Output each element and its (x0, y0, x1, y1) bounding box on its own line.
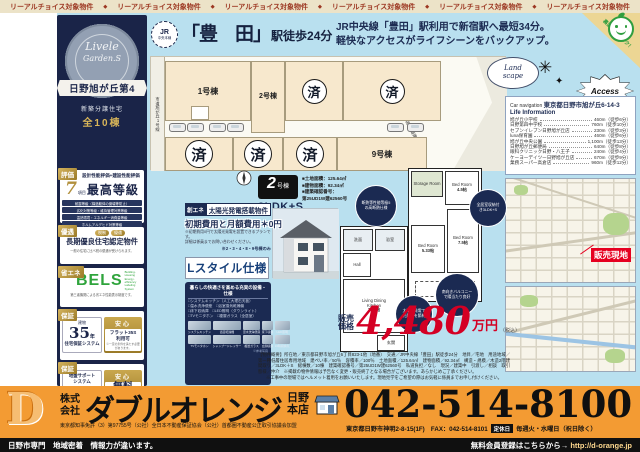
strip-label: リーアルチョイス対象物件 (439, 2, 522, 12)
site-location-label: 販売現地 (591, 248, 631, 262)
bubble-text: 全居室収納付き3LDK+S (475, 203, 501, 214)
equipment-bullet: □TVモニタホン □複層ガラス（全居室） (188, 314, 268, 319)
strip-separator-icon: ◆ (533, 4, 537, 10)
branch-name1: 日野 (287, 392, 309, 404)
flat35s-box: 安心 フラット35S 利用可 ※一定の条件を満たす必要があります。 (104, 317, 142, 353)
equipment-tile: 浴室乾燥機 (213, 321, 242, 334)
real-estate-flyer: リーアルチョイス対象物件◆ リーアルチョイス対象物件◆ リーアルチョイス対象物件… (0, 0, 640, 452)
equipment-tile: シャンプードレッサー (213, 335, 242, 348)
warranty-years: 35 (69, 324, 90, 342)
strip-separator-icon: ◆ (211, 4, 215, 10)
car-icon (387, 123, 404, 132)
lot-2: 2号棟 (251, 61, 285, 133)
footer-slogan: 日野市専門 地域密着 情報力が違います。 (8, 440, 157, 451)
company-bar: D 株式 会社 ダブルオレンジ 日野 本店 042-514-8100 東京都知事… (0, 386, 640, 438)
bels-logo-sub: Building-Housing Energy-efficiency Label… (125, 271, 142, 291)
badge-tag: 省エネ (58, 266, 84, 278)
sparkle-icon: ✦ (555, 76, 563, 87)
bubble-text: 断熱等性能等級5の高断熱仕様 (361, 201, 391, 212)
station-title: 「豊 田」駅徒歩24分 (181, 19, 332, 46)
wide-area-map (505, 286, 636, 372)
lot-1-garage (191, 106, 209, 120)
lot-sold: 済 (343, 61, 441, 121)
room-bed3-size: 7.5帖 (458, 241, 468, 246)
car-icon (227, 123, 244, 132)
badge-tag: 保証 (58, 309, 77, 321)
overview-text: 【物件概要】所在地／東京都日野市旭が丘6丁目823-1他（地番） 交通／JR中央… (258, 352, 510, 374)
tile-caption: シャンプードレッサー (213, 344, 242, 348)
company-logo: D (6, 388, 44, 432)
reference-photo-note: ※参考写真 (188, 349, 268, 353)
access-label: Access (591, 87, 619, 96)
strip-separator-icon: ◆ (425, 4, 429, 10)
badge-long-term-quality: 優遇 税制 優遇 長期優良住宅認定物件 一般の住宅に比べ税の優遇が受けられます。 (60, 227, 144, 264)
lot-1-label: 1号棟 (198, 86, 218, 97)
property-overview: 【物件概要】所在地／東京都日野市旭が丘6丁目823-1他（地番） 交通／JR中央… (258, 352, 510, 381)
jr-label: JR (160, 29, 169, 36)
solar-banner: 創エネ 太陽光発電搭載物件 (185, 203, 271, 216)
smiley-face-icon (608, 16, 634, 42)
room-storage: Storage Room (414, 182, 441, 187)
park-area (514, 185, 528, 195)
car-icon (209, 123, 226, 132)
room-powder: 洗面 (354, 238, 362, 243)
badge-note: 一般の住宅に比べ税の優遇が受けられます。 (62, 248, 142, 253)
tile-caption: 複層ガラス (243, 344, 260, 348)
price-unit: 万円 (472, 315, 498, 334)
anshin-label: 安心 (105, 319, 141, 328)
sold-stamp: 済 (244, 140, 272, 168)
address-row: 東京都日野市神明2-8-15(1F) FAX：042-514-8101 定休日 … (346, 424, 597, 433)
equipment-tile: システムキッチン (188, 321, 211, 334)
strip-separator-icon: ◆ (318, 4, 322, 10)
lot-sold: 済 (233, 137, 283, 171)
facility-distance: 960m（徒歩12分） (591, 160, 631, 165)
holiday-text: 毎週火・水曜日（祝日除く） (516, 424, 596, 433)
flat35s-note: ※一定の条件を満たす必要があります。 (106, 342, 140, 350)
website-link[interactable]: http://d-orange.jp (570, 441, 632, 450)
jr-line-badge-icon: JR 中央本線 (151, 21, 178, 48)
car-icon (407, 123, 424, 132)
catch-copy: JR中央線「豊田」駅利用で新宿駅へ最短34分。 軽快なアクセスがライフシーンをバ… (336, 21, 536, 48)
solar-title: 太陽光発電搭載物件 (206, 203, 271, 216)
header-strip: リーアルチョイス対象物件◆ リーアルチョイス対象物件◆ リーアルチョイス対象物件… (0, 0, 640, 13)
project-emblem: Livele Garden.S 日野旭が丘第4 新築分譲住宅 全10棟 (60, 18, 144, 166)
feature-bubble: 全居室収納付き3LDK+S (470, 190, 506, 226)
badge-heading: 長期優良住宅認定物件 (62, 237, 142, 247)
tile-caption: 玄関収納 (262, 344, 274, 348)
brand-logo-sub: Garden.S (60, 54, 144, 63)
jr-line-name: 中央本線 (158, 36, 172, 40)
lot-9-label: 9号棟 (372, 149, 392, 160)
badge-grade: 最高等級 (87, 181, 139, 198)
lot-sold: 済 (283, 137, 337, 171)
grade-row: 耐震等級（構造躯体の倒壊等防止） (62, 200, 142, 206)
badge-number: 7 (65, 179, 77, 199)
strip-label: リーアルチョイス対象物件 (546, 2, 629, 12)
station-walk: 駅徒歩24分 (271, 29, 332, 43)
warranty-years-unit: 年 (90, 334, 95, 340)
badge-chip: 税制 (95, 230, 109, 236)
badge-tag: 評価 (58, 168, 77, 180)
badge-performance-rating: 評価 設計性能評価+建設性能評価 7 項目 最高等級 耐震等級（構造躯体の倒壊等… (60, 170, 144, 223)
company-type2: 会社 (60, 406, 80, 418)
room-bed2-size: 5.33帖 (422, 249, 434, 254)
sold-stamp: 済 (302, 79, 327, 104)
sold-stamp: 済 (296, 140, 324, 168)
road-left: 市道旭が丘1号線 (151, 57, 165, 171)
life-information-card: Car navigation 東京都日野市旭が丘6-14-3 Life Info… (505, 96, 636, 175)
facility-name: 業務スーパー高倉店 (510, 160, 551, 165)
lot-1: 1号棟 (165, 61, 251, 121)
company-type1: 株式 (60, 394, 80, 406)
company-address: 東京都日野市神明2-8-15(1F) FAX：042-514-8101 (346, 424, 488, 433)
price-block: 販売 価格 4,480 万円 （税込） (338, 304, 520, 338)
unit-number: 2 (267, 175, 276, 193)
lot-sold: 済 (165, 137, 233, 171)
tile-caption: TVモニタホン (188, 344, 211, 348)
equipment-tile: 24時間換気 (275, 335, 290, 348)
strip-label: リーアルチョイス対象物件 (332, 2, 415, 12)
equipment-tile: LED照明 (275, 321, 290, 334)
badge-tag: 保証 (58, 362, 77, 374)
sold-stamp: 済 (185, 140, 213, 168)
project-subtitle: 新築分譲住宅 (60, 104, 144, 113)
grade-row: 温熱環境・エネルギー消費量等級 (62, 214, 142, 220)
storefront-icon (314, 394, 340, 421)
equipment-tile: TVモニタホン (188, 335, 211, 348)
leaf-icon (617, 12, 625, 19)
badge-tag: 優遇 (58, 225, 77, 237)
unit-number-suffix: 号棟 (277, 181, 289, 190)
strip-label: リーアルチョイス対象物件 (117, 2, 200, 12)
left-margin (0, 13, 57, 386)
warranty-35-box: 建物 35年 住宅保証システム (62, 317, 102, 353)
badge-heading: 設計性能評価+建設性能評価 (80, 173, 142, 179)
station-name: 「豊 田」 (181, 24, 271, 45)
tile-caption: 床下収納 (262, 330, 274, 334)
certification-panel: Livele Garden.S 日野旭が丘第4 新築分譲住宅 全10棟 評価 設… (57, 15, 147, 386)
tile-caption: システムキッチン (188, 330, 211, 334)
holiday-chip: 定休日 (491, 424, 514, 433)
license-text: 東京都知事免許（3）第97755号（公社）全日本不動産保証協会（公社）首都圏不動… (60, 422, 340, 429)
catch-line1: JR中央線「豊田」駅利用で新宿駅へ最短34分。 (336, 21, 536, 35)
price-label2: 価格 (338, 323, 354, 332)
park-area (605, 349, 625, 363)
project-name-ribbon: 日野旭が丘第4 (57, 80, 147, 96)
badge-bels: 省エネ BELS Building-Housing Energy-efficie… (60, 268, 144, 307)
badge-chip: 優遇 (111, 230, 125, 236)
car-icon (169, 123, 186, 132)
road-left-label: 市道旭が丘1号線 (155, 97, 161, 131)
badge-number-unit: 項目 (78, 190, 86, 196)
car-icon (187, 123, 204, 132)
sold-stamp: 済 (380, 79, 405, 104)
solar-note-line2: 詳細は係員までお問い合わせください。 (185, 240, 271, 245)
solar-tag: 創エネ (185, 203, 206, 216)
solar-note: ※初期費用0円で太陽光発電を設置できるプランです。 詳細は係員までお問い合わせく… (185, 230, 271, 245)
tile-caption: 24時間換気 (275, 344, 290, 348)
solar-zero-cost: 初期費用と月額費用＊0円 (185, 218, 271, 230)
overview-note: ※工事中の現場ではヘルメット着用をお願いいたします。現地見学をご希望の際はお気軽… (258, 375, 510, 381)
park-area (603, 213, 629, 235)
solar-note-line1: ※初期費用0円で太陽光発電を設置できるプランです。 (185, 230, 271, 240)
equipment-tile: 床下収納 (262, 321, 274, 334)
unit-number-box: 2 号棟 (258, 175, 298, 199)
equipment-tile: 玄関収納 (262, 335, 274, 348)
branch-name2: 本店 (287, 404, 309, 416)
compass-icon (236, 170, 252, 186)
footer-signup: 無料会員登録はこちらから→ http://d-orange.jp (471, 440, 632, 451)
sparkle-icon: ✳ (538, 58, 552, 78)
landscape-cloud: Land scape (487, 57, 539, 89)
solar-applicable-units: ※2・3・4・8・9号棟のみ (185, 246, 271, 252)
car-nav-address: 東京都日野市旭が丘6-14-3 (544, 102, 620, 109)
strip-label: リーアルチョイス対象物件 (10, 2, 93, 12)
life-info-title: Life Information (510, 110, 631, 116)
page-curl[interactable]: 裏面もチェック！ (582, 13, 640, 68)
anshin-label: 安心 (105, 372, 141, 381)
badge-warranty-35: 保証 建物 35年 住宅保証システム 安心 フラット35S 利用可 ※一定の条件… (60, 311, 144, 360)
brand-logo: Livele (60, 40, 144, 53)
room-bath: 浴室 (386, 238, 394, 243)
warranty-text: 住宅保証システム (64, 341, 100, 347)
feature-bubble: 断熱等性能等級5の高断熱仕様 (356, 186, 396, 226)
catch-line2: 軽快なアクセスがライフシーンをバックアップ。 (336, 35, 536, 49)
lot-9: 9号棟 (337, 137, 427, 171)
tile-caption: 浴室乾燥機 (213, 330, 242, 334)
strip-separator-icon: ◆ (103, 4, 107, 10)
smiley-mouth (616, 27, 626, 35)
area-map: 販売現地 (505, 178, 636, 283)
park-area (520, 295, 538, 307)
cloud-text2: scape (503, 73, 523, 81)
room-bed1-size: 4.5帖 (457, 188, 467, 193)
equipment-tile: 複層ガラス (243, 335, 260, 348)
site-plan: 市道旭が丘1号線 法42条1項2号道路 1号棟 2号棟 済 済 済 済 済 (150, 56, 506, 170)
price-tax-note: （税込） (500, 327, 520, 334)
phone-number[interactable]: 042-514-8100 (344, 382, 632, 426)
equipment-tile: 温水洗浄便座 (243, 321, 260, 334)
life-info-row: 業務スーパー高倉店960m（徒歩12分） (510, 160, 631, 165)
land-area: ■土地面積：125.64㎡ (302, 176, 374, 183)
total-units: 全10棟 (60, 114, 144, 129)
equipment-title: 暮らしの快適さを高める充実の設備・仕様 (188, 285, 268, 299)
lot-2-label: 2号棟 (259, 93, 277, 101)
footer-bar: 日野市専門 地域密着 情報力が違います。 無料会員登録はこちらから→ http:… (0, 438, 640, 452)
badge-note: 第三者機関による省エネ性能表示制度です。 (62, 292, 142, 297)
grade-row: 劣化対策等級・維持管理対策等級 (62, 207, 142, 213)
room-hall: Hall (353, 263, 360, 268)
strip-label: リーアルチョイス対象物件 (225, 2, 308, 12)
car-nav-label: Car navigation (510, 103, 542, 109)
l-style-badge: Lスタイル仕様 (185, 257, 269, 279)
tile-caption: 温水洗浄便座 (243, 330, 260, 334)
tile-caption: LED照明 (275, 330, 290, 334)
lot-sold: 済 (285, 61, 343, 121)
price-value: 4,480 (356, 304, 470, 338)
signup-label: 無料会員登録はこちらから→ (471, 441, 569, 450)
